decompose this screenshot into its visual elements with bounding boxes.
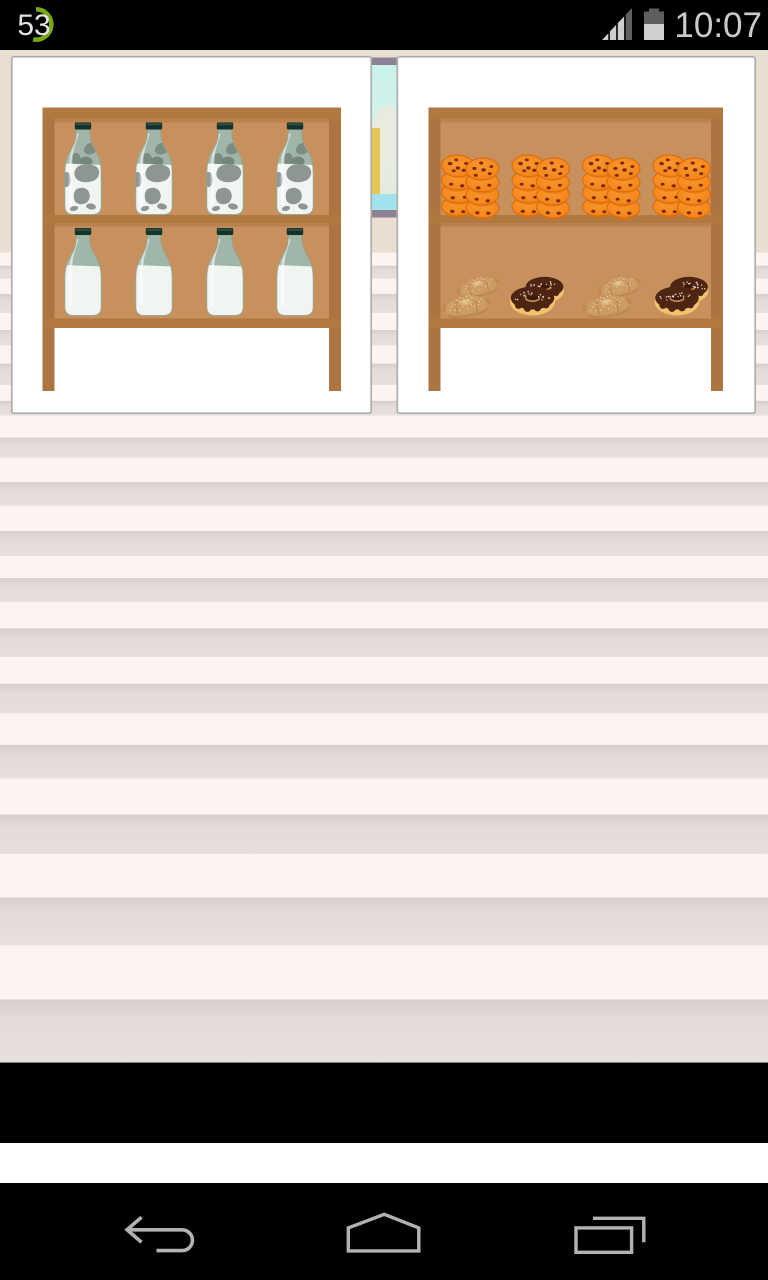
svg-text:10:07: 10:07 [674, 6, 762, 45]
svg-text:53: 53 [17, 9, 50, 42]
